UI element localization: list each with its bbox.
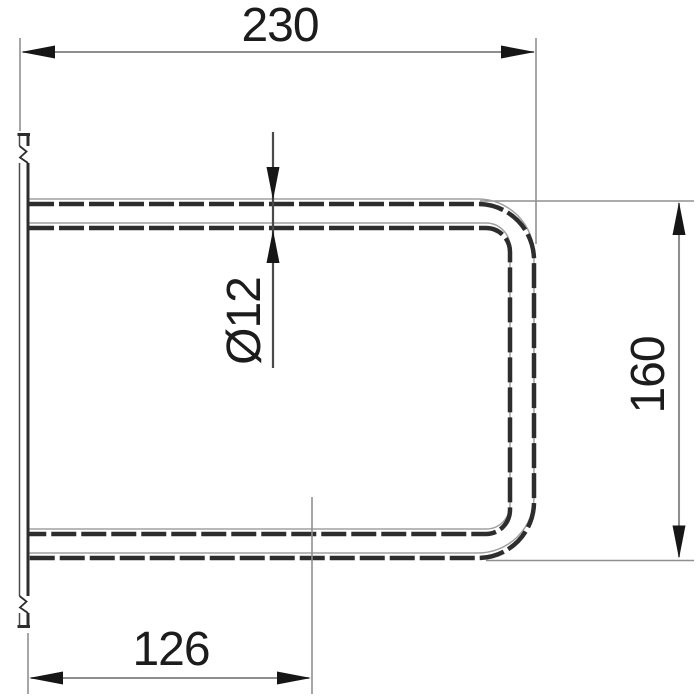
arrowhead-160-top [673,202,686,235]
arrowhead-126-left [29,672,63,685]
arrowhead-diameter-top [267,167,280,200]
dimension-label-side-height: 160 [625,336,673,413]
arrowhead-230-right [501,46,535,59]
arrowhead-diameter-bottom [267,230,280,263]
arrowhead-160-bottom [673,526,686,559]
arrowhead-126-right [277,672,311,685]
wall-plate [16,133,31,628]
dimension-label-top-width: 230 [241,2,318,50]
tube-outer-underline [29,199,534,553]
tube-inner-outline [29,228,510,534]
dimension-lines [21,46,686,695]
dimension-label-tube-diameter: Ø12 [221,277,269,365]
tube-inner-underline [29,223,510,529]
arrowhead-230-left [21,46,55,59]
dimension-label-bottom-width: 126 [132,626,209,674]
drawing-canvas [0,0,700,700]
tube-outer-outline [29,204,534,558]
extension-lines [20,38,694,694]
technical-drawing: 230 Ø12 160 126 [0,0,700,700]
tube [29,199,534,558]
